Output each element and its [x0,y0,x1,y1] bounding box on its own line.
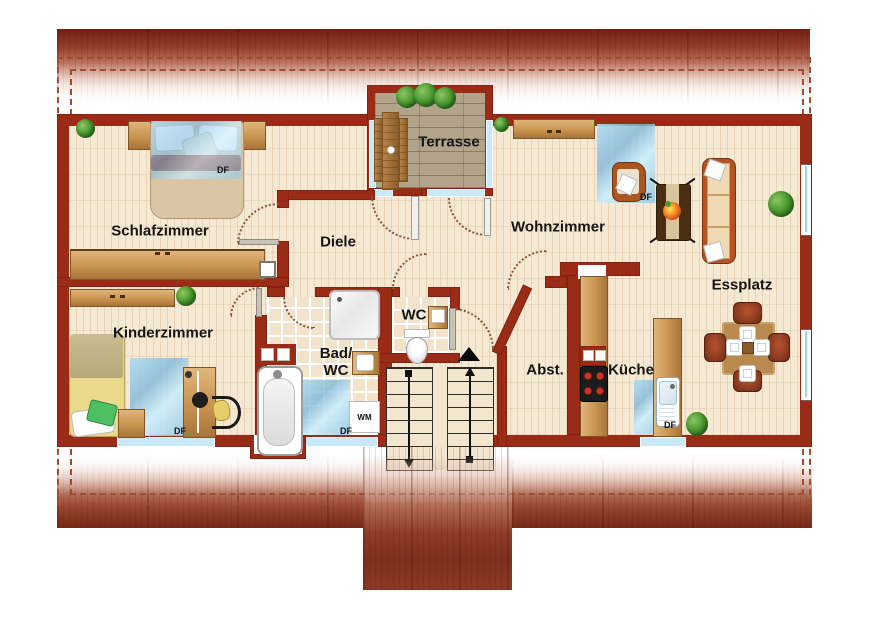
stove [580,366,608,402]
bath-faucet [273,370,282,379]
bathtub-inner [263,378,295,446]
window [805,331,807,397]
sofa-cushion [707,195,730,227]
handle [547,130,552,133]
dining-chair [733,302,762,324]
window [117,437,215,447]
room-label-terrasse: Terrasse [418,133,479,150]
room-label-essplatz: Essplatz [712,276,773,293]
stairs-up-icon [458,347,480,361]
terrace-bench [399,118,408,182]
room-label-bad-wc: Bad/ WC [320,345,353,380]
sideboard [70,289,175,307]
plant [768,191,794,217]
bedside-table [118,409,145,438]
wall [267,287,285,297]
wall [497,346,507,447]
handle [165,252,170,255]
door-leaf [449,308,456,350]
plate [726,339,743,356]
skylight-label: DF [640,192,652,202]
plant [494,117,509,132]
fruit-leaf [665,201,671,207]
counter-box [583,350,594,361]
skylight-label: DF [217,165,229,175]
room-label-abstellraum: Abst. [526,361,564,378]
stairs-start-marker [405,370,412,377]
room-label-diele: Diele [320,233,356,250]
door-leaf [411,196,419,240]
skylight-label: DF [664,420,676,430]
terrace-table-decor [387,146,395,154]
handle [120,295,125,298]
window [640,437,686,447]
handle [556,130,561,133]
skylight-label: DF [340,426,352,436]
roof-stairwell-column [363,447,512,590]
nightstand [128,121,151,150]
handle [110,295,115,298]
skylight-label: DF [174,426,186,436]
washbasin [431,309,445,323]
nightstand [243,121,266,150]
room-label-kinderzimmer: Kinderzimmer [113,324,213,341]
dining-chair [704,333,726,362]
door-leaf [239,239,279,245]
door-leaf [484,198,491,236]
wall [545,276,567,288]
dining-chair [768,333,790,362]
room-label-schlafzimmer: Schlafzimmer [111,222,209,239]
terrace-window [486,120,493,188]
sink-faucet [670,384,675,389]
terrace-window [427,189,485,197]
wall [277,190,375,200]
room-label-wc: WC [402,306,427,323]
window [303,437,378,447]
washing-machine: WM [349,401,380,433]
sideboard [513,119,595,139]
plate [753,339,770,356]
table-center [742,342,754,354]
plate [739,365,756,382]
desk-lamp [185,371,192,378]
wall [567,262,580,435]
plant [76,119,95,138]
plant [176,286,196,306]
wall [450,287,460,310]
window [805,166,807,232]
plant [434,87,456,109]
room-label-kueche: Küche [608,361,654,378]
washing-machine-label: WM [357,413,371,422]
terrace-bench [374,118,383,182]
counter-box [595,350,606,361]
washbasin [277,348,290,361]
room-label-wohnzimmer: Wohnzimmer [511,218,605,235]
door-leaf [256,288,262,317]
arrow-up-icon [465,367,475,376]
floor-plan: WM Schlafzimmer Kinderzimmer Diele Terra… [0,0,877,621]
handle [155,252,160,255]
washbasin [356,354,374,371]
plant [686,412,708,436]
monitor [192,392,208,408]
washbasin [261,348,274,361]
shower-drain [337,297,342,302]
wall-box [259,261,276,278]
